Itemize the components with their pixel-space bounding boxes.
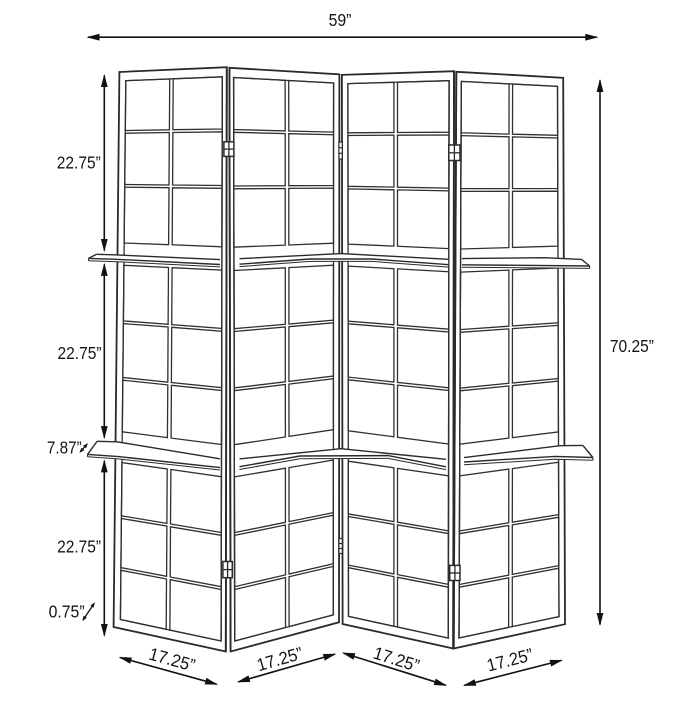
svg-text:17.25”: 17.25” — [147, 644, 198, 676]
svg-text:17.25”: 17.25” — [371, 643, 422, 676]
svg-text:22.75”: 22.75” — [57, 537, 101, 557]
svg-text:22.75”: 22.75” — [58, 343, 102, 363]
svg-text:59”: 59” — [329, 10, 352, 30]
svg-text:22.75”: 22.75” — [57, 153, 101, 173]
svg-text:7.87”: 7.87” — [47, 437, 82, 457]
svg-text:17.25”: 17.25” — [485, 644, 536, 675]
svg-text:70.25”: 70.25” — [610, 336, 654, 356]
svg-text:0.75”: 0.75” — [49, 601, 85, 621]
